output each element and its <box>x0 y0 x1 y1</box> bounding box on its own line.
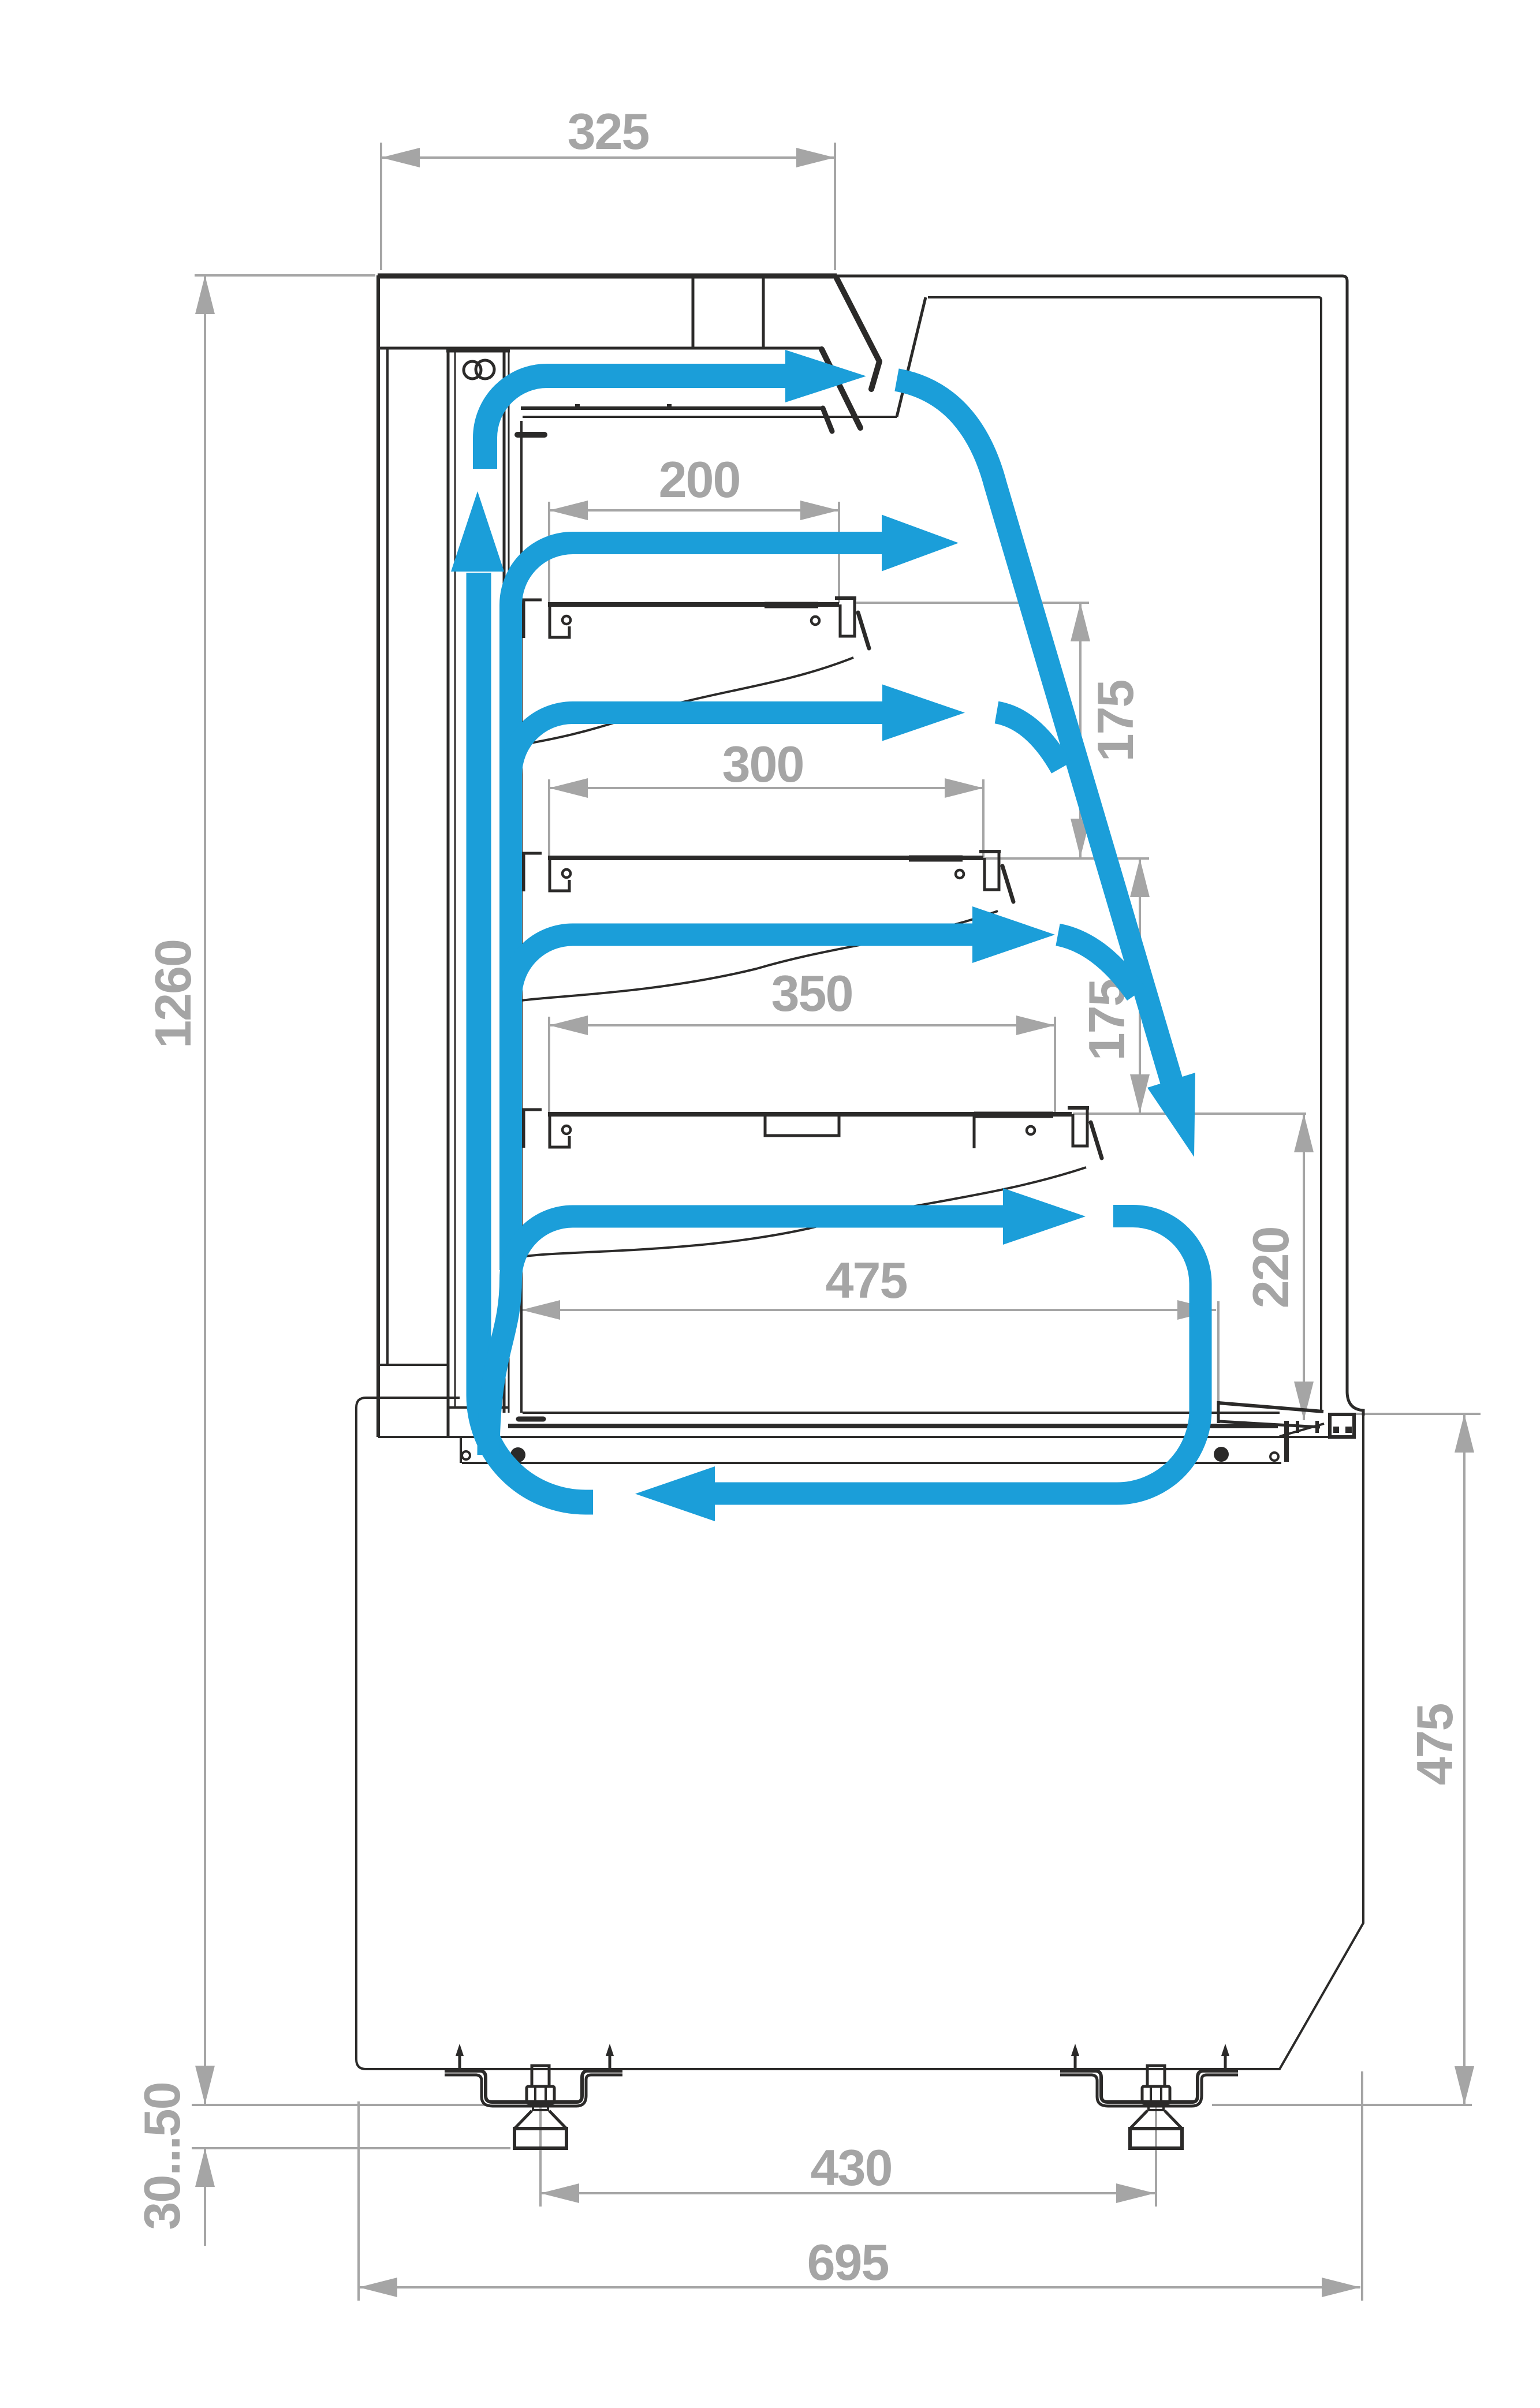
svg-text:300: 300 <box>722 736 804 793</box>
svg-text:695: 695 <box>807 2234 889 2291</box>
svg-text:475: 475 <box>826 1252 907 1309</box>
svg-text:200: 200 <box>659 451 740 508</box>
svg-text:430: 430 <box>811 2139 892 2196</box>
svg-text:30...50: 30...50 <box>133 2082 191 2230</box>
svg-text:175: 175 <box>1087 681 1144 762</box>
svg-text:1260: 1260 <box>144 940 202 1048</box>
svg-text:220: 220 <box>1242 1227 1299 1309</box>
svg-text:475: 475 <box>1406 1704 1463 1786</box>
svg-text:325: 325 <box>568 103 649 160</box>
svg-text:350: 350 <box>771 965 853 1022</box>
